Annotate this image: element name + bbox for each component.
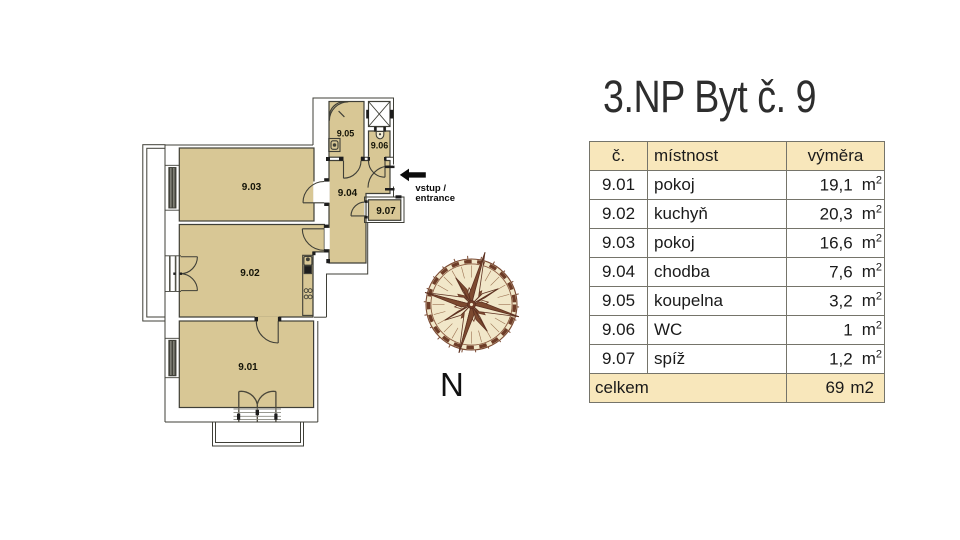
svg-text:9.05: 9.05 (337, 129, 355, 139)
svg-text:9.07: 9.07 (376, 206, 396, 217)
svg-text:entrance: entrance (415, 193, 455, 204)
svg-text:9.04: 9.04 (338, 188, 358, 199)
svg-text:N: N (440, 366, 464, 403)
svg-text:9.06: 9.06 (371, 141, 389, 151)
svg-text:9.03: 9.03 (242, 182, 262, 193)
svg-text:9.01: 9.01 (238, 362, 258, 373)
svg-text:9.02: 9.02 (240, 268, 260, 279)
